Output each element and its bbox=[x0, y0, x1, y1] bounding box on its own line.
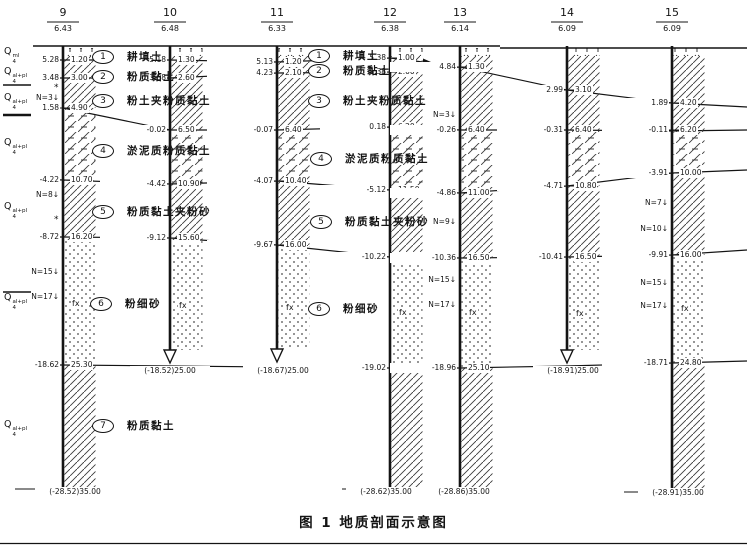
circled-layer-number: 4 bbox=[310, 152, 332, 166]
borehole-bottom-depth-label: (-18.52)25.00 bbox=[130, 366, 210, 376]
layer-annotation: 3粉土夹粉质黏土 bbox=[92, 93, 211, 108]
fx-marker-label: fx bbox=[680, 304, 690, 313]
elevation-label: -5.12 bbox=[320, 185, 387, 195]
soil-column-band bbox=[674, 363, 705, 490]
circled-layer-number: 2 bbox=[92, 70, 114, 84]
depth-label: 1.30 bbox=[467, 62, 486, 72]
depth-label: 10.40 bbox=[284, 176, 307, 186]
borehole-bottom-depth-label: (-28.86)35.00 bbox=[424, 487, 504, 497]
depth-label: 16.50 bbox=[467, 253, 490, 263]
elevation-label: -4.42 bbox=[100, 179, 167, 189]
layer-name: 粉细砂 bbox=[343, 301, 379, 316]
depth-label: 15.60 bbox=[177, 233, 200, 243]
soil-column-band bbox=[279, 48, 310, 56]
circled-layer-number: 7 bbox=[92, 419, 114, 433]
elevation-label: 5.13 bbox=[207, 57, 274, 67]
depth-label: 3.10 bbox=[574, 85, 593, 95]
elevation-label: -18.62 bbox=[0, 360, 60, 370]
soil-column-band bbox=[569, 257, 600, 350]
fx-marker-label: fx bbox=[398, 308, 408, 317]
circled-layer-number: 6 bbox=[308, 302, 330, 316]
depth-label: 16.00 bbox=[679, 250, 702, 260]
circled-layer-number: 1 bbox=[308, 49, 330, 63]
strat-age-subscript: 4 bbox=[12, 215, 27, 221]
depth-label: 1.30 bbox=[177, 55, 196, 65]
depth-label: 25.30 bbox=[70, 360, 93, 370]
circled-layer-number: 5 bbox=[92, 205, 114, 219]
elevation-label: -3.91 bbox=[602, 168, 669, 178]
soil-column-band bbox=[172, 240, 203, 350]
depth-label: 1.20 bbox=[284, 57, 303, 67]
borehole-end-arrow bbox=[164, 350, 176, 363]
elevation-label: -4.07 bbox=[207, 176, 274, 186]
depth-label: 25.10 bbox=[467, 363, 490, 373]
layer-name: 粉细砂 bbox=[125, 296, 161, 311]
depth-label: 4.90 bbox=[70, 103, 89, 113]
depth-label: 10.00 bbox=[679, 168, 702, 178]
strat-age-scripts: al+pl4 bbox=[12, 427, 27, 438]
strat-age-label: Qal+pl4 bbox=[4, 92, 27, 111]
elevation-label: -9.67 bbox=[207, 240, 274, 250]
geological-profile-figure: 96.435.281.203.483.001.584.90-4.2210.70-… bbox=[0, 0, 747, 546]
layer-annotation: 7粉质黏土 bbox=[92, 418, 175, 433]
elevation-label: -0.11 bbox=[602, 125, 669, 135]
layer-name: 粉质黏土 bbox=[127, 418, 175, 433]
soil-column-band bbox=[674, 48, 705, 56]
borehole-bottom-depth-label: (-28.91)35.00 bbox=[638, 488, 718, 498]
strat-age-subscript: 4 bbox=[12, 151, 27, 157]
layer-name: 淤泥质粉质黏土 bbox=[345, 151, 429, 166]
figure-caption: 图 1 地质剖面示意图 bbox=[0, 511, 747, 531]
soil-column-band bbox=[569, 48, 600, 56]
spt-n-value-label: N=10↓ bbox=[620, 224, 668, 234]
layer-annotation: 3粉土夹粉质黏土 bbox=[308, 93, 427, 108]
depth-label: 6.40 bbox=[284, 125, 303, 135]
strat-age-subscript: 4 bbox=[12, 80, 27, 86]
asterisk-mark: * bbox=[54, 84, 59, 92]
soil-column-band bbox=[569, 186, 600, 257]
depth-label: 2.60 bbox=[177, 73, 196, 83]
borehole-top-elevation: 6.38 bbox=[370, 24, 410, 34]
strat-age-label: Qal+pl4 bbox=[4, 201, 27, 220]
depth-label: 24.80 bbox=[679, 358, 702, 368]
depth-label: 6.40 bbox=[467, 125, 486, 135]
strat-age-scripts: ml4 bbox=[12, 54, 19, 65]
elevation-label: -18.96 bbox=[390, 363, 457, 373]
layer-annotation: 2粉质黏土 bbox=[308, 63, 391, 78]
strat-age-base: Q bbox=[4, 292, 11, 303]
elevation-label: -10.41 bbox=[497, 252, 564, 262]
depth-label: 11.00 bbox=[467, 188, 490, 198]
layer-annotation: 6粉细砂 bbox=[90, 296, 161, 311]
depth-label: 3.00 bbox=[70, 73, 89, 83]
circled-layer-number: 3 bbox=[308, 94, 330, 108]
elevation-label: -9.91 bbox=[602, 250, 669, 260]
fx-marker-label: fx bbox=[178, 301, 188, 310]
spt-n-value-label: N=15↓ bbox=[620, 278, 668, 288]
circled-layer-number: 4 bbox=[92, 144, 114, 158]
strat-age-base: Q bbox=[4, 92, 11, 103]
elevation-label: -0.26 bbox=[390, 125, 457, 135]
depth-label: 10.70 bbox=[70, 175, 93, 185]
depth-label: 4.20 bbox=[679, 98, 698, 108]
elevation-label: -8.72 bbox=[0, 232, 60, 242]
spt-n-value-label: N=8↓ bbox=[11, 190, 59, 200]
strat-age-base: Q bbox=[4, 46, 11, 57]
fx-marker-label: fx bbox=[285, 303, 295, 312]
elevation-label: -9.12 bbox=[100, 233, 167, 243]
spt-n-value-label: N=3↓ bbox=[408, 110, 456, 120]
borehole-top-elevation: 6.43 bbox=[43, 24, 83, 34]
soil-column-band bbox=[279, 181, 310, 246]
soil-column-band bbox=[279, 246, 310, 349]
strat-age-label: Qal+pl4 bbox=[4, 419, 27, 438]
elevation-label: -18.71 bbox=[602, 358, 669, 368]
layer-name: 淤泥质粉质黏土 bbox=[127, 143, 211, 158]
depth-label: 2.10 bbox=[284, 68, 303, 78]
borehole-top-elevation: 6.33 bbox=[257, 24, 297, 34]
strat-age-scripts: al+pl4 bbox=[12, 209, 27, 220]
elevation-label: -0.02 bbox=[100, 125, 167, 135]
depth-label: 16.00 bbox=[284, 240, 307, 250]
layer-annotation: 4淤泥质粉质黏土 bbox=[92, 143, 211, 158]
elevation-label: -10.22 bbox=[320, 252, 387, 262]
soil-column-band bbox=[674, 173, 705, 255]
borehole-bottom-depth-label: (-28.52)35.00 bbox=[35, 487, 115, 497]
depth-label: 10.90 bbox=[177, 179, 200, 189]
strat-age-label: Qal+pl4 bbox=[4, 137, 27, 156]
depth-label: 6.40 bbox=[574, 125, 593, 135]
borehole-top-elevation: 6.09 bbox=[547, 24, 587, 34]
strat-age-label: Qml4 bbox=[4, 46, 19, 65]
circled-layer-number: 2 bbox=[308, 64, 330, 78]
soil-column-band bbox=[462, 368, 493, 487]
elevation-label: 2.99 bbox=[497, 85, 564, 95]
layer-annotation: 1耕填土 bbox=[308, 48, 379, 63]
fx-marker-label: fx bbox=[71, 299, 81, 308]
spt-n-value-label: N=15↓ bbox=[11, 267, 59, 277]
elevation-label: -4.86 bbox=[390, 188, 457, 198]
borehole-number: 12 bbox=[370, 6, 410, 19]
strat-age-scripts: al+pl4 bbox=[12, 300, 27, 311]
depth-label: 6.20 bbox=[679, 125, 698, 135]
soil-column-band bbox=[65, 180, 96, 240]
depth-label: 1.20 bbox=[70, 55, 89, 65]
soil-column-band bbox=[462, 48, 493, 56]
layer-annotation: 2粉质黏土 bbox=[92, 69, 175, 84]
layer-annotation: 4淤泥质粉质黏土 bbox=[310, 151, 429, 166]
elevation-label: 4.23 bbox=[207, 68, 274, 78]
elevation-label: 1.89 bbox=[602, 98, 669, 108]
layer-name: 粉质黏土夹粉砂 bbox=[127, 204, 211, 219]
strat-age-subscript: 4 bbox=[12, 306, 27, 312]
soil-column-band bbox=[569, 130, 600, 186]
borehole-number: 13 bbox=[440, 6, 480, 19]
fx-marker-label: fx bbox=[575, 309, 585, 318]
borehole-bottom-depth-label: (-28.62)35.00 bbox=[346, 487, 426, 497]
soil-column-band bbox=[674, 131, 705, 173]
layer-annotation: 5粉质黏土夹粉砂 bbox=[92, 204, 211, 219]
borehole-number: 10 bbox=[150, 6, 190, 19]
elevation-label: -10.36 bbox=[390, 253, 457, 263]
strat-age-subscript: 4 bbox=[12, 106, 27, 112]
borehole-top-elevation: 6.48 bbox=[150, 24, 190, 34]
asterisk-mark: * bbox=[54, 216, 59, 224]
elevation-label: -4.22 bbox=[0, 175, 60, 185]
layer-name: 耕填土 bbox=[127, 49, 163, 64]
strat-age-label: Qal+pl4 bbox=[4, 292, 27, 311]
strat-age-scripts: al+pl4 bbox=[12, 74, 27, 85]
fx-marker-label: fx bbox=[468, 308, 478, 317]
layer-name: 耕填土 bbox=[343, 48, 379, 63]
strat-age-label: Qal+pl4 bbox=[4, 66, 27, 85]
circled-layer-number: 6 bbox=[90, 297, 112, 311]
borehole-number: 11 bbox=[257, 6, 297, 19]
layer-name: 粉土夹粉质黏土 bbox=[343, 93, 427, 108]
borehole-end-arrow bbox=[271, 349, 283, 362]
strat-age-subscript: 4 bbox=[12, 433, 27, 439]
strat-age-scripts: al+pl4 bbox=[12, 100, 27, 111]
soil-column-band bbox=[279, 130, 310, 181]
borehole-top-elevation: 6.14 bbox=[440, 24, 480, 34]
strat-age-subscript: 4 bbox=[12, 60, 19, 66]
elevation-label: 0.18 bbox=[320, 122, 387, 132]
elevation-label: -0.31 bbox=[497, 125, 564, 135]
soil-column-band bbox=[462, 193, 493, 258]
borehole-top-elevation: 6.09 bbox=[652, 24, 692, 34]
borehole-bottom-depth-label: (-18.91)25.00 bbox=[533, 366, 613, 376]
borehole-number: 9 bbox=[43, 6, 83, 19]
strat-age-base: Q bbox=[4, 137, 11, 148]
elevation-label: 4.84 bbox=[390, 62, 457, 72]
soil-column-band bbox=[462, 130, 493, 193]
strat-age-scripts: al+pl4 bbox=[12, 145, 27, 156]
layer-name: 粉质黏土夹粉砂 bbox=[345, 214, 429, 229]
strat-age-base: Q bbox=[4, 66, 11, 77]
strat-age-base: Q bbox=[4, 419, 11, 430]
spt-n-value-label: N=7↓ bbox=[620, 198, 668, 208]
borehole-number: 14 bbox=[547, 6, 587, 19]
layer-annotation: 6粉细砂 bbox=[308, 301, 379, 316]
depth-label: 16.50 bbox=[574, 252, 597, 262]
circled-layer-number: 1 bbox=[92, 50, 114, 64]
borehole-end-arrow bbox=[561, 350, 573, 363]
strat-age-base: Q bbox=[4, 201, 11, 212]
borehole-number: 15 bbox=[652, 6, 692, 19]
soil-column-band bbox=[392, 368, 423, 487]
depth-label: 6.50 bbox=[177, 125, 196, 135]
soil-column-band bbox=[65, 108, 96, 180]
layer-annotation: 5粉质黏土夹粉砂 bbox=[310, 214, 429, 229]
layer-name: 粉质黏土 bbox=[343, 63, 391, 78]
circled-layer-number: 3 bbox=[92, 94, 114, 108]
spt-n-value-label: N=17↓ bbox=[620, 301, 668, 311]
elevation-label: -4.71 bbox=[497, 181, 564, 191]
borehole-bottom-depth-label: (-18.67)25.00 bbox=[243, 366, 323, 376]
soil-column-band bbox=[674, 56, 705, 131]
layer-annotation: 1耕填土 bbox=[92, 49, 163, 64]
circled-layer-number: 5 bbox=[310, 215, 332, 229]
elevation-label: -0.07 bbox=[207, 125, 274, 135]
depth-label: 16.20 bbox=[70, 232, 93, 242]
spt-n-value-label: N=17↓ bbox=[408, 300, 456, 310]
soil-column-band bbox=[65, 365, 96, 487]
elevation-label: -19.02 bbox=[320, 363, 387, 373]
layer-name: 粉质黏土 bbox=[127, 69, 175, 84]
layer-name: 粉土夹粉质黏土 bbox=[127, 93, 211, 108]
spt-n-value-label: N=15↓ bbox=[408, 275, 456, 285]
depth-label: 10.80 bbox=[574, 181, 597, 191]
